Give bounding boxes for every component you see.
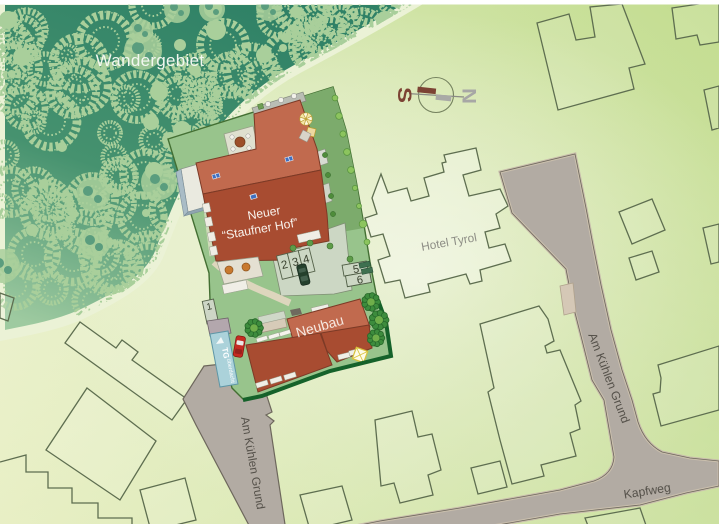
svg-text:TG: TG (220, 347, 231, 360)
svg-text:S: S (393, 87, 414, 103)
svg-text:Wandergebiet: Wandergebiet (96, 51, 205, 70)
svg-text:N: N (458, 88, 479, 104)
